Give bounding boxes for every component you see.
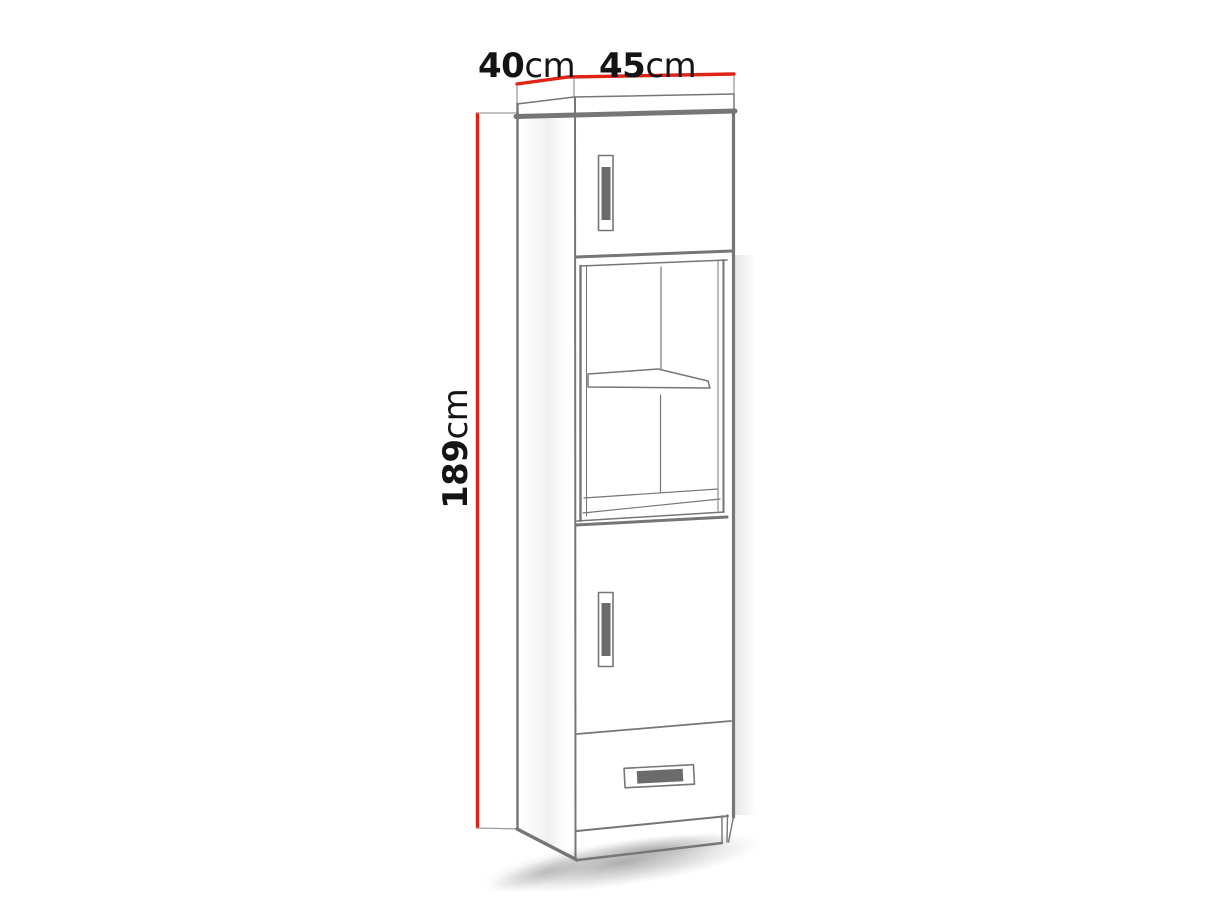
bottom-door-bottom-edge — [577, 721, 731, 734]
shelf-compartment — [577, 260, 727, 521]
bottom-door — [576, 517, 731, 734]
handle-fills — [602, 167, 684, 784]
top-back-edge — [517, 94, 734, 104]
floor-front-edge — [583, 499, 720, 513]
front-left-corner-edge — [575, 98, 576, 858]
right-edge-shading — [735, 255, 756, 815]
width-label: 45cm — [599, 46, 696, 86]
top-door-handle-bar — [602, 167, 611, 220]
middle-shelf — [588, 369, 710, 388]
drawer-handle-bar — [637, 769, 684, 784]
height-label: 189cm — [436, 389, 476, 509]
side-panel-shading — [519, 114, 573, 856]
floor-back-edge — [584, 489, 718, 498]
top-front-edge — [516, 111, 735, 117]
opening-top-edge — [581, 260, 727, 266]
diagram-canvas: 40cm 45cm 189cm — [0, 0, 1216, 912]
bottom-door-handle-bar — [602, 603, 611, 656]
extension-bottom-left — [477, 828, 521, 829]
top-door-bottom-edge — [576, 251, 732, 257]
top-door — [576, 156, 732, 258]
depth-label: 40cm — [478, 46, 575, 86]
cabinet-dimension-diagram: 40cm 45cm 189cm — [0, 0, 1216, 912]
bottom-door-top-edge — [576, 517, 727, 525]
base-right-line — [727, 815, 728, 842]
drawer-bottom-edge — [577, 816, 728, 831]
